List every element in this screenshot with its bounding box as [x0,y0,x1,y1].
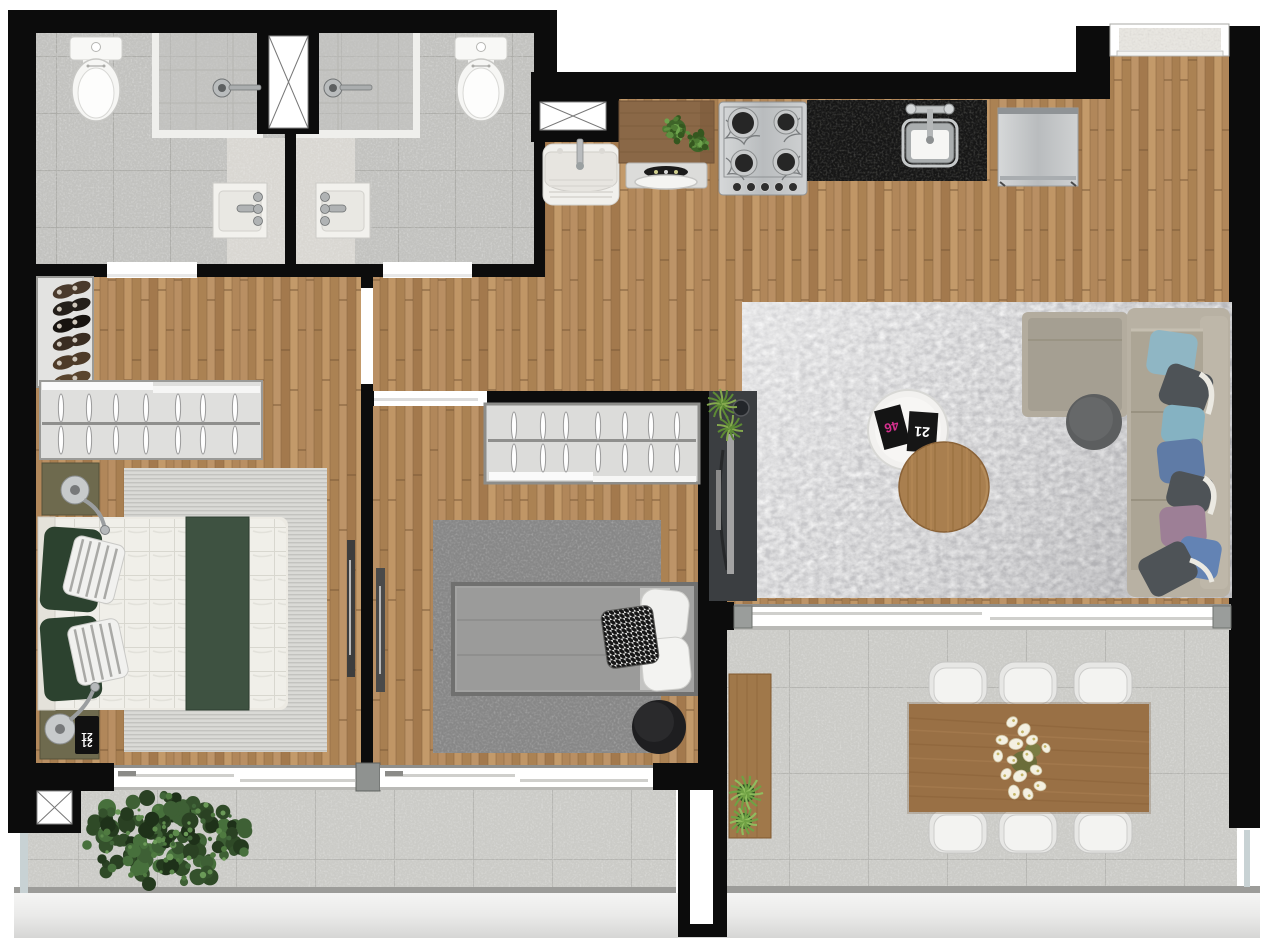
svg-text:21: 21 [81,737,93,748]
svg-text:21: 21 [913,423,930,440]
